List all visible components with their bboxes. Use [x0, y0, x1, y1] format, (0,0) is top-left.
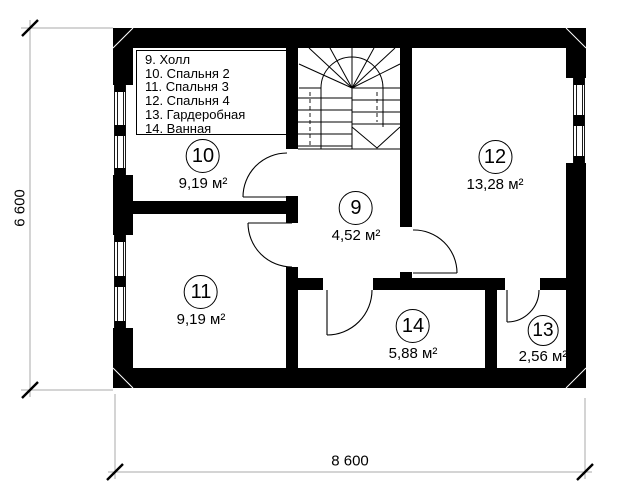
room-number-circle-10: 10: [186, 139, 220, 173]
staircase: [298, 48, 400, 149]
room-area-11: 9,19 м²: [177, 311, 226, 328]
window-left-top: [113, 85, 133, 175]
legend-item-wardrobe: 13. Гардеробная: [145, 108, 286, 122]
room-number-circle-12: 12: [478, 140, 512, 174]
dimension-width-label: 8 600: [331, 453, 369, 470]
room-label-10: 10 9,19 м²: [179, 139, 228, 192]
dimension-lines: [21, 20, 592, 479]
legend-item-bathroom: 14. Ванная: [145, 122, 286, 136]
room-number-circle-9: 9: [339, 191, 373, 225]
legend-box: 9. Холл 10. Спальня 2 11. Спальня 3 12. …: [136, 50, 287, 135]
window-right: [566, 78, 586, 163]
room-label-12: 12 13,28 м²: [466, 140, 523, 193]
room-area-14: 5,88 м²: [389, 345, 438, 362]
room-area-13: 2,56 м²: [519, 348, 568, 365]
dimension-height-label: 6 600: [12, 189, 29, 227]
room-area-9: 4,52 м²: [332, 227, 381, 244]
door-room-12: [413, 230, 457, 273]
floor-plan-drawing: [0, 0, 643, 502]
legend-item-bedroom3: 11. Спальня 3: [145, 80, 286, 94]
room-label-11: 11 9,19 м²: [177, 275, 226, 328]
legend-item-bedroom2: 10. Спальня 2: [145, 67, 286, 81]
room-label-14: 14 5,88 м²: [389, 309, 438, 362]
door-room-14: [327, 290, 372, 335]
legend-item-hall: 9. Холл: [145, 53, 286, 67]
door-room-11: [248, 223, 292, 267]
room-area-10: 9,19 м²: [179, 175, 228, 192]
room-number-circle-13: 13: [527, 315, 558, 346]
dimension-ticks: [22, 20, 593, 480]
door-room-10: [243, 153, 287, 197]
window-left-bottom: [113, 235, 133, 328]
room-area-12: 13,28 м²: [466, 176, 523, 193]
legend-item-bedroom4: 12. Спальня 4: [145, 94, 286, 108]
room-number-circle-14: 14: [396, 309, 430, 343]
room-label-13: 13 2,56 м²: [519, 315, 568, 365]
floor-plan-page: 9. Холл 10. Спальня 2 11. Спальня 3 12. …: [0, 0, 643, 502]
room-number-circle-11: 11: [184, 275, 218, 309]
room-label-9: 9 4,52 м²: [332, 191, 381, 244]
